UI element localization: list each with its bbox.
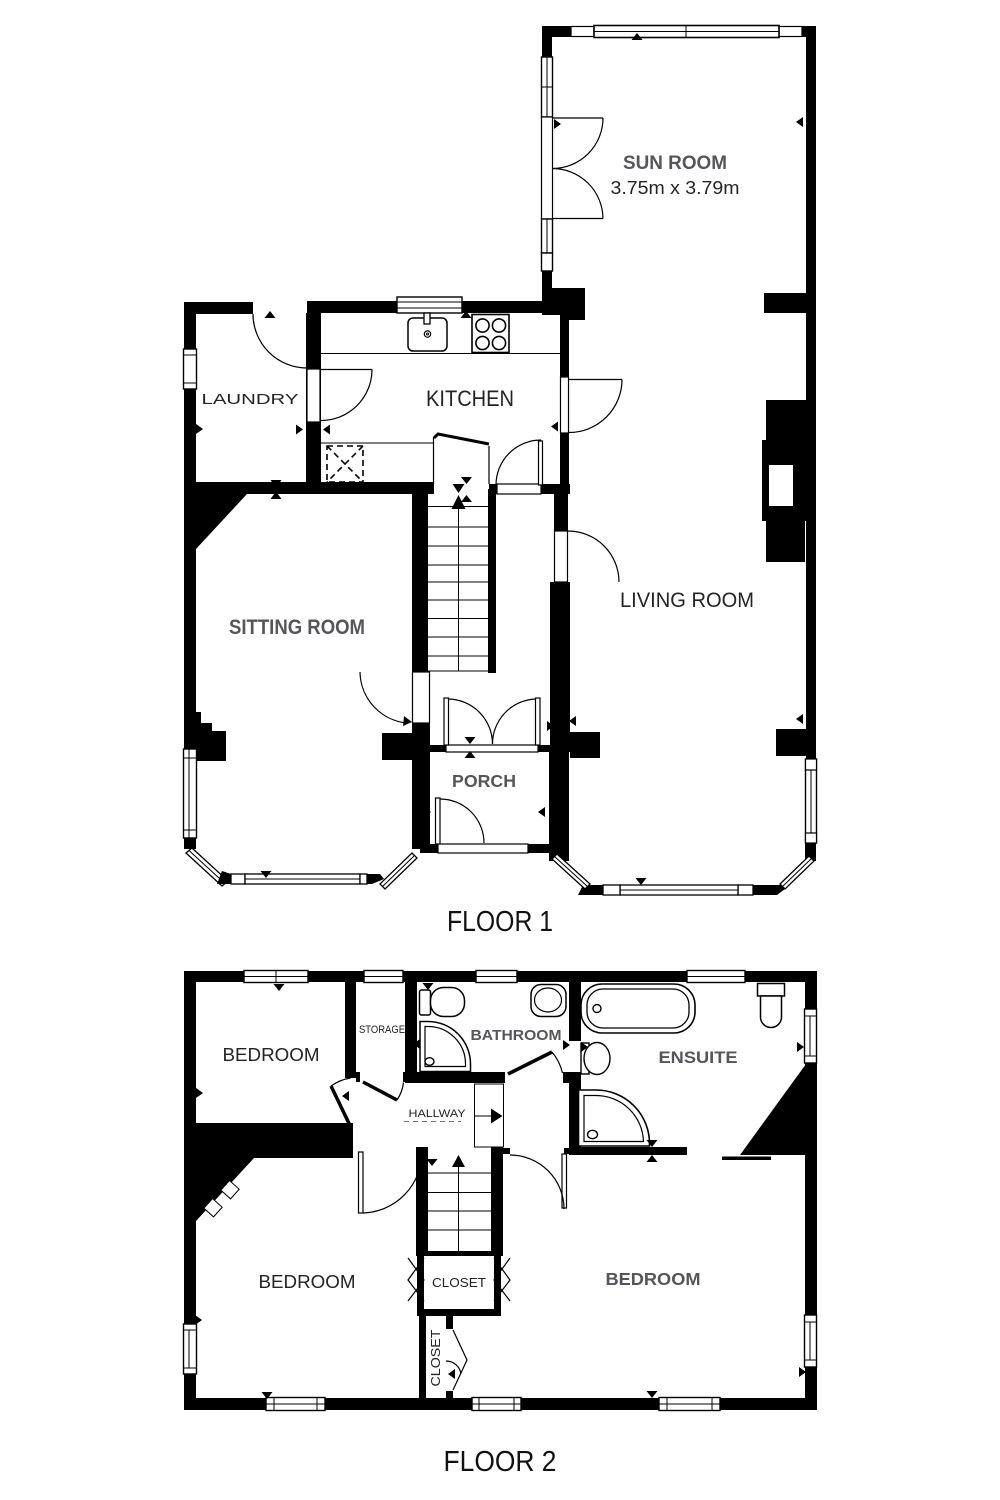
svg-text:ENSUITE: ENSUITE — [659, 1049, 738, 1067]
svg-text:SITTING ROOM: SITTING ROOM — [229, 616, 365, 639]
svg-text:CLOSET: CLOSET — [432, 1275, 486, 1290]
svg-text:FLOOR 1: FLOOR 1 — [447, 906, 553, 938]
svg-text:FLOOR 2: FLOOR 2 — [444, 1446, 557, 1478]
svg-text:PORCH: PORCH — [452, 771, 516, 791]
svg-text:BEDROOM: BEDROOM — [223, 1044, 320, 1065]
svg-text:SUN ROOM: SUN ROOM — [623, 152, 727, 174]
svg-text:HALLWAY: HALLWAY — [409, 1108, 467, 1120]
svg-text:BATHROOM: BATHROOM — [471, 1027, 562, 1044]
svg-text:3.75m x 3.79m: 3.75m x 3.79m — [611, 177, 740, 198]
svg-text:BEDROOM: BEDROOM — [606, 1269, 701, 1289]
svg-text:STORAGE: STORAGE — [359, 1024, 405, 1036]
svg-text:CLOSET: CLOSET — [428, 1329, 443, 1386]
svg-text:LIVING ROOM: LIVING ROOM — [620, 588, 754, 612]
svg-text:LAUNDRY: LAUNDRY — [202, 391, 299, 408]
svg-text:BEDROOM: BEDROOM — [259, 1271, 356, 1292]
svg-text:KITCHEN: KITCHEN — [426, 386, 514, 411]
